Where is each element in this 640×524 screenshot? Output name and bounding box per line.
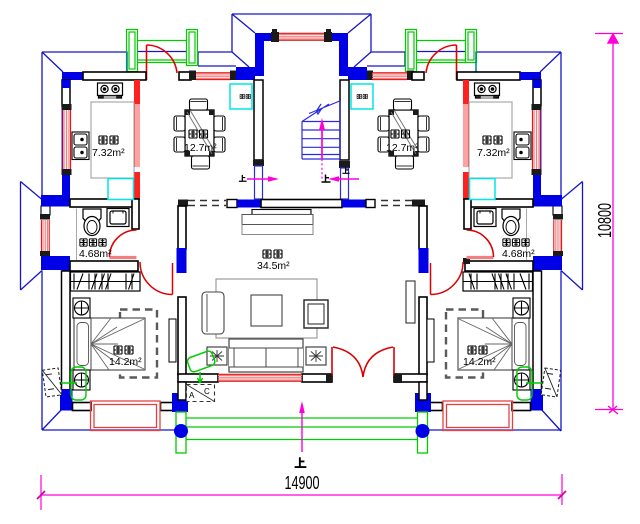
svg-text:34.5m²: 34.5m² xyxy=(257,260,290,272)
svg-text:C: C xyxy=(204,387,210,396)
svg-text:14.2m²: 14.2m² xyxy=(109,356,142,368)
svg-text:14.2m²: 14.2m² xyxy=(463,356,496,368)
svg-text:12.7m²: 12.7m² xyxy=(386,142,419,154)
svg-text:12.7m²: 12.7m² xyxy=(184,142,217,154)
svg-text:14900: 14900 xyxy=(285,473,320,493)
svg-text:7.32m²: 7.32m² xyxy=(477,147,510,159)
svg-text:A: A xyxy=(189,391,195,400)
svg-text:10800: 10800 xyxy=(595,203,615,238)
svg-text:4.68m²: 4.68m² xyxy=(79,248,112,260)
svg-text:4.68m²: 4.68m² xyxy=(502,248,535,260)
svg-text:7.32m²: 7.32m² xyxy=(92,147,125,159)
